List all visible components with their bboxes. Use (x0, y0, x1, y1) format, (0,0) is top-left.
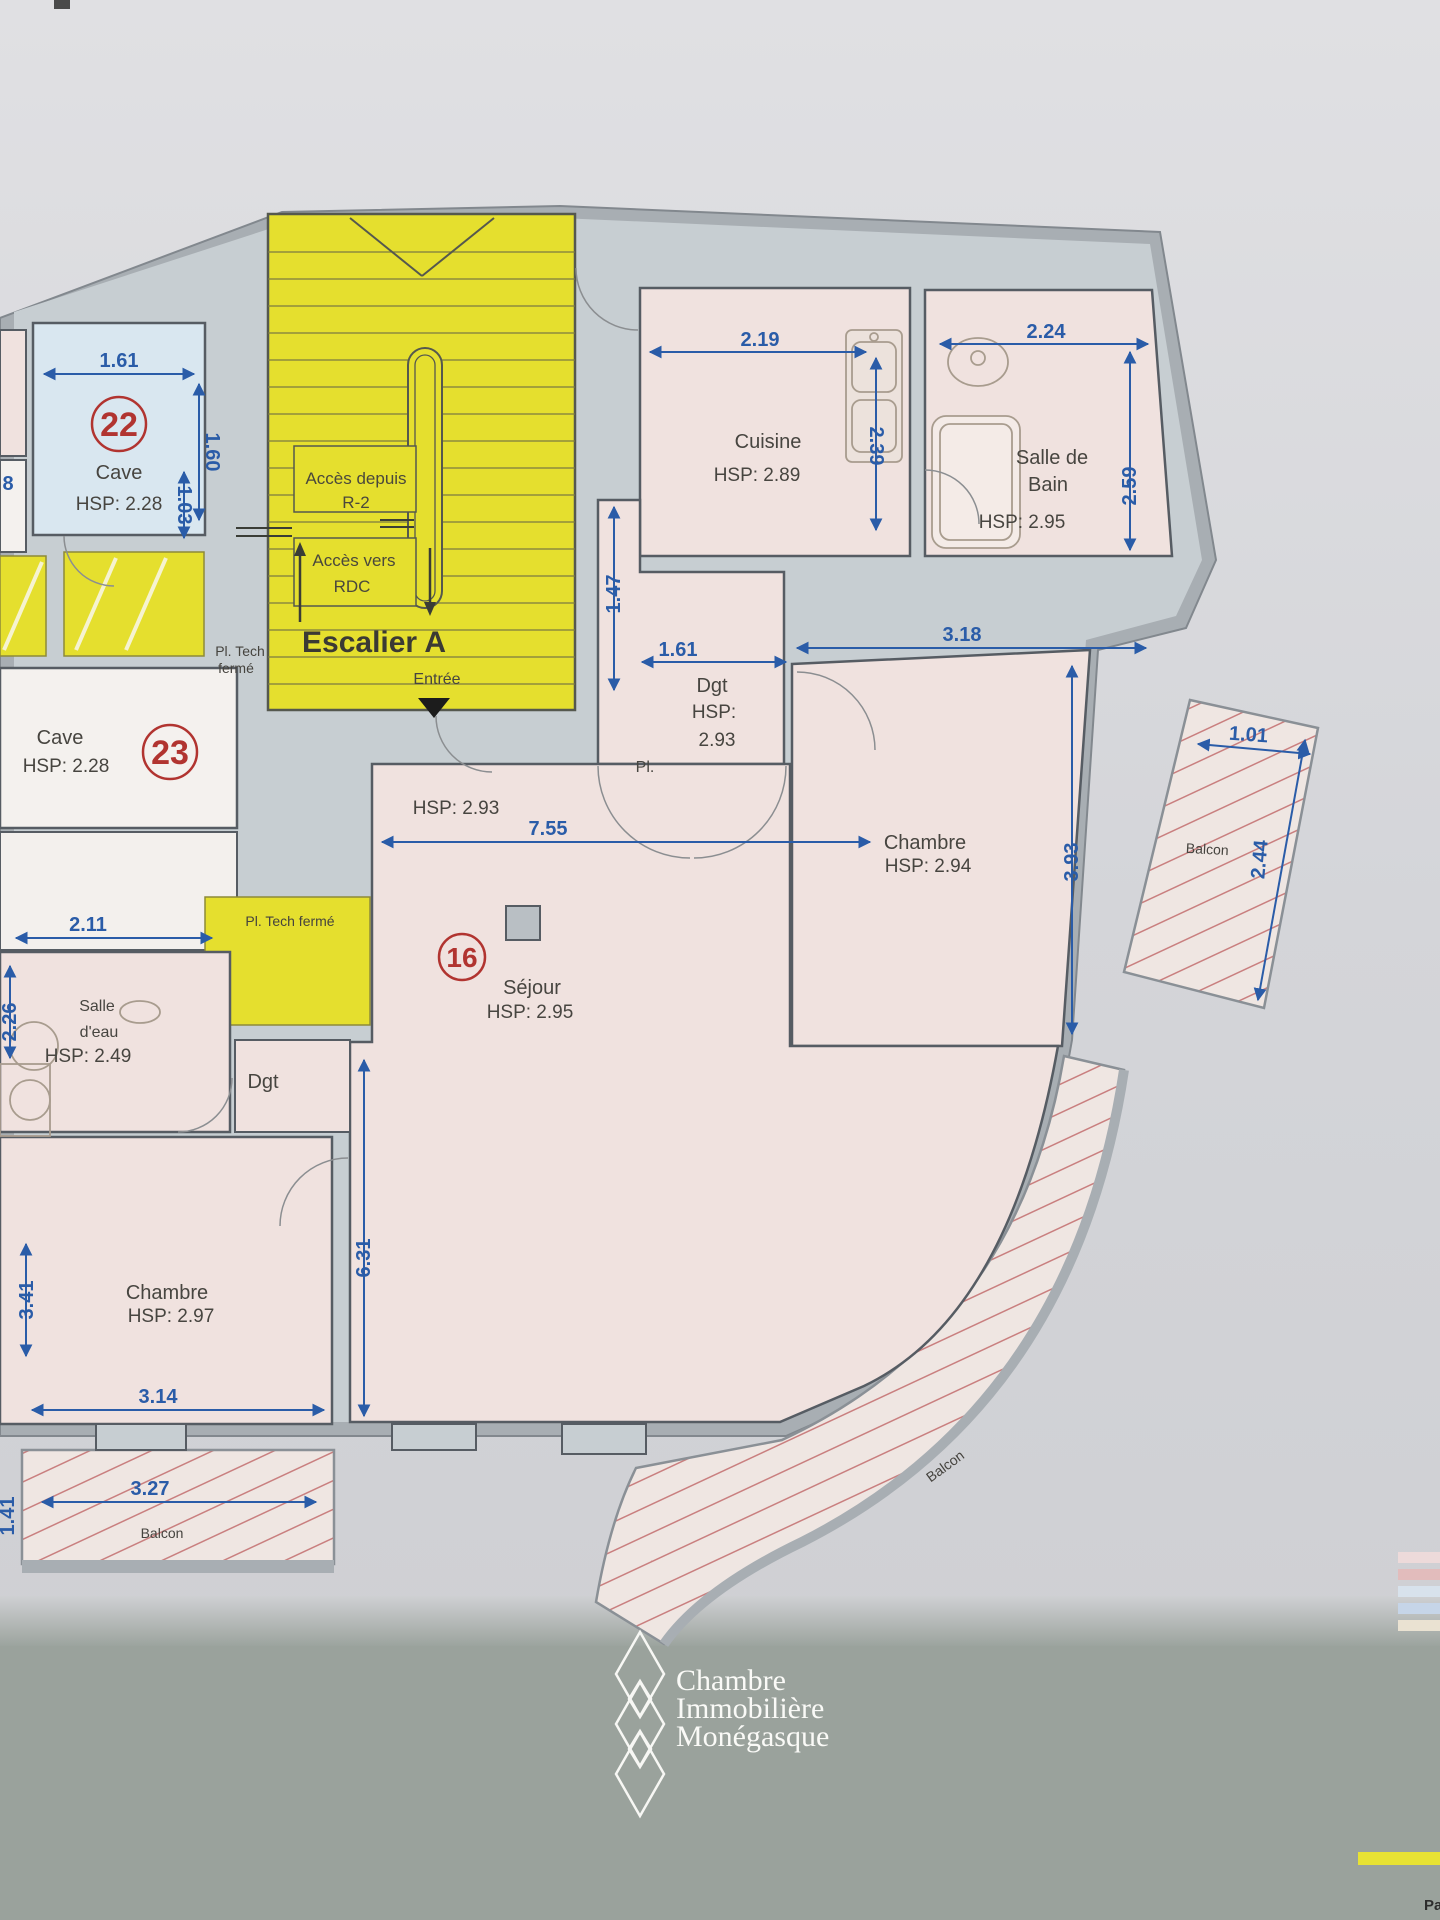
chambre-ne-hsp: HSP: 2.94 (885, 856, 972, 877)
room-cave-23 (0, 668, 237, 828)
window-bay-2 (562, 1424, 646, 1454)
dim-balcon-e-height: 2.44 (1247, 838, 1272, 880)
paper-shadow-edge (0, 1596, 1440, 1648)
room-chambre-sw (0, 1137, 332, 1424)
dim-cave22-height: 1.60 (201, 433, 223, 472)
dim-hall-width: 1.61 (659, 639, 698, 661)
lot-number-16: 16 (446, 942, 477, 973)
chambre-ne-name: Chambre (884, 832, 966, 854)
pillar (506, 906, 540, 940)
dim-balcon-sw-height: 1.41 (0, 1497, 19, 1536)
dim-chambre-sw-width: 3.14 (139, 1386, 179, 1408)
dim-balcon-sw-width: 3.27 (131, 1478, 170, 1500)
dim-chambre-sw-height: 3.41 (16, 1281, 38, 1320)
dgt-entry-name: Dgt (696, 675, 728, 697)
lot-number-22: 22 (100, 406, 138, 444)
dim-left-partial: 8 (2, 473, 13, 495)
access-to-line1: Accès vers (312, 551, 395, 570)
salle-eau-name-line1: Salle (79, 998, 115, 1015)
dim-sdb-width: 2.24 (1027, 321, 1067, 343)
floor-plan-photo: 1.61 1.60 8 1.03 2.19 2.39 2.24 2.59 1.4… (0, 0, 1440, 1920)
watermark-line3: Monégasque (676, 1720, 829, 1753)
sejour-name: Séjour (503, 977, 561, 999)
balcony-southwest (22, 1450, 334, 1573)
footer-partial-text: Pa (1424, 1897, 1440, 1914)
sdb-name-line2: Bain (1028, 474, 1068, 496)
entrance-label: Entrée (413, 671, 460, 688)
legend-yellow-bar (1358, 1852, 1440, 1865)
chambre-sw-hsp: HSP: 2.97 (128, 1306, 215, 1327)
sejour-hsp: HSP: 2.95 (487, 1002, 574, 1023)
room-salle-eau (0, 952, 230, 1132)
pl-tech-left-line2: fermé (218, 660, 254, 676)
cave22-hsp: HSP: 2.28 (76, 494, 163, 515)
window-bay-3 (96, 1424, 186, 1450)
cuisine-hsp: HSP: 2.89 (714, 465, 801, 486)
sdb-hsp: HSP: 2.95 (979, 512, 1066, 533)
window-bay-1 (392, 1424, 476, 1450)
balcon-sw-label: Balcon (141, 1525, 184, 1541)
closet-pl-label: Pl. (636, 759, 655, 776)
sdb-name-line1: Salle de (1016, 447, 1088, 469)
lot-number-23: 23 (151, 734, 189, 772)
stairwell-title: Escalier A (302, 626, 446, 659)
dim-salle-eau-width: 2.11 (69, 914, 107, 936)
sejour-hall-hsp: HSP: 2.93 (413, 798, 500, 819)
access-from-line2: R-2 (342, 493, 369, 512)
room-edge-sliver (0, 330, 26, 456)
access-from-line1: Accès depuis (305, 469, 406, 488)
cave23-hsp: HSP: 2.28 (23, 756, 110, 777)
dim-chambre-ne-width: 3.18 (943, 624, 982, 646)
pl-tech-left-line1: Pl. Tech (215, 643, 265, 659)
pl-tech-center-label: Pl. Tech fermé (245, 913, 334, 929)
dim-cave22-width: 1.61 (100, 350, 139, 372)
cave-lobby (0, 832, 237, 950)
salle-eau-name-line2: d'eau (80, 1024, 119, 1041)
page-edge-mark (54, 0, 70, 9)
dim-cave-side: 1.03 (173, 486, 195, 525)
dim-salle-eau-height: 2.26 (0, 1003, 21, 1042)
dgt-entry-hsp1: HSP: (692, 702, 736, 723)
balcon-e-label: Balcon (1185, 840, 1229, 858)
dim-cuisine-width: 2.19 (741, 329, 780, 351)
dim-sejour-height: 6.31 (353, 1239, 375, 1278)
dgt-entry-hsp2: 2.93 (699, 730, 736, 751)
dim-sdb-height: 2.59 (1119, 467, 1141, 506)
tech-closet-strips (0, 552, 204, 656)
cave22-name: Cave (96, 462, 143, 484)
dim-balcon-e-width: 1.01 (1228, 723, 1268, 748)
cuisine-name: Cuisine (735, 431, 802, 453)
dim-cuisine-height: 2.39 (865, 427, 887, 466)
dim-chambre-ne-height: 3.93 (1061, 843, 1083, 882)
dim-sejour-width: 7.55 (529, 818, 568, 840)
chambre-sw-name: Chambre (126, 1282, 208, 1304)
access-to-line2: RDC (334, 577, 371, 596)
cave23-name: Cave (37, 727, 84, 749)
floor-plan-canvas: 1.61 1.60 8 1.03 2.19 2.39 2.24 2.59 1.4… (0, 0, 1440, 1920)
salle-eau-hsp: HSP: 2.49 (45, 1046, 132, 1067)
dgt-sw-name: Dgt (247, 1071, 279, 1093)
dim-hall-height: 1.47 (603, 575, 625, 614)
